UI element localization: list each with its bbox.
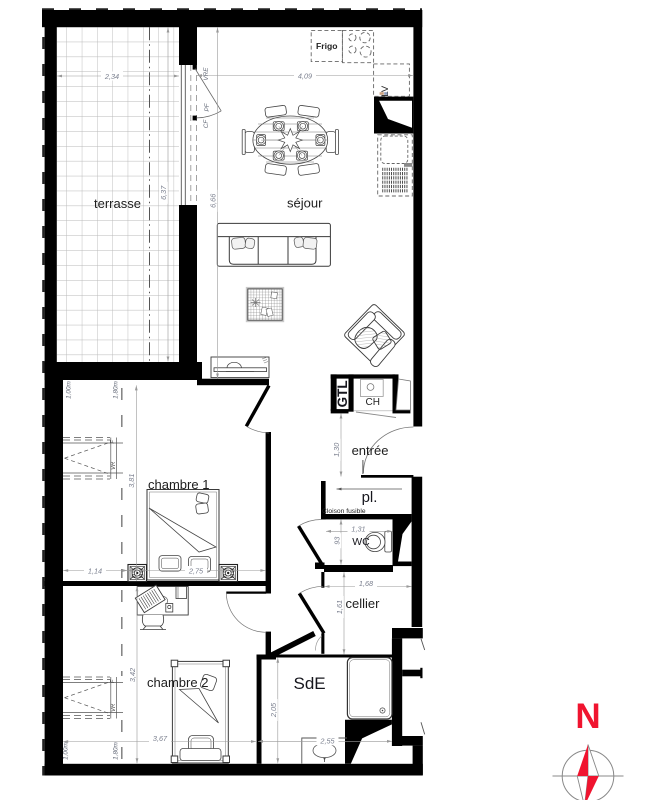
svg-text:1,80m: 1,80m bbox=[113, 380, 120, 398]
svg-text:CH: CH bbox=[365, 397, 379, 408]
svg-text:1,80m: 1,80m bbox=[113, 741, 120, 759]
svg-text:terrasse: terrasse bbox=[94, 196, 141, 211]
svg-text:chambre 1: chambre 1 bbox=[148, 477, 209, 492]
svg-text:CF: CF bbox=[203, 119, 210, 129]
svg-text:chambre 2: chambre 2 bbox=[147, 675, 208, 690]
svg-text:WC: WC bbox=[352, 536, 370, 548]
svg-text:1,31: 1,31 bbox=[351, 524, 365, 533]
svg-text:LV: LV bbox=[380, 85, 391, 97]
svg-text:93: 93 bbox=[333, 537, 342, 545]
svg-text:3,42: 3,42 bbox=[128, 668, 137, 682]
svg-text:VR: VR bbox=[111, 703, 117, 712]
svg-text:2,05: 2,05 bbox=[269, 702, 278, 718]
svg-text:2,55: 2,55 bbox=[319, 737, 335, 746]
svg-text:GTL: GTL bbox=[335, 380, 350, 407]
svg-text:pl.: pl. bbox=[362, 489, 378, 506]
svg-text:6,66: 6,66 bbox=[209, 193, 218, 208]
svg-text:3,67: 3,67 bbox=[153, 734, 168, 743]
svg-text:1,00m: 1,00m bbox=[62, 741, 69, 759]
svg-text:PF: PF bbox=[204, 102, 211, 111]
svg-text:1,61: 1,61 bbox=[335, 600, 344, 614]
svg-text:2,34: 2,34 bbox=[104, 72, 119, 81]
svg-text:Cloison fusible: Cloison fusible bbox=[322, 508, 366, 515]
svg-text:entrée: entrée bbox=[352, 443, 389, 458]
svg-text:N: N bbox=[575, 697, 600, 736]
svg-text:6,37: 6,37 bbox=[159, 185, 168, 200]
svg-text:4,09: 4,09 bbox=[298, 71, 312, 80]
svg-text:SdE: SdE bbox=[294, 674, 326, 693]
svg-text:1,14: 1,14 bbox=[88, 566, 102, 575]
svg-text:VRE: VRE bbox=[203, 67, 210, 81]
svg-text:1,30: 1,30 bbox=[332, 443, 341, 457]
svg-text:1,00m: 1,00m bbox=[65, 380, 72, 398]
svg-text:2,75: 2,75 bbox=[188, 566, 204, 575]
svg-text:séjour: séjour bbox=[287, 196, 323, 211]
svg-text:Frigo: Frigo bbox=[316, 41, 337, 51]
svg-text:1,68: 1,68 bbox=[359, 579, 374, 588]
svg-text:VR: VR bbox=[111, 461, 117, 470]
svg-text:3,81: 3,81 bbox=[127, 474, 136, 488]
svg-text:cellier: cellier bbox=[346, 596, 381, 611]
